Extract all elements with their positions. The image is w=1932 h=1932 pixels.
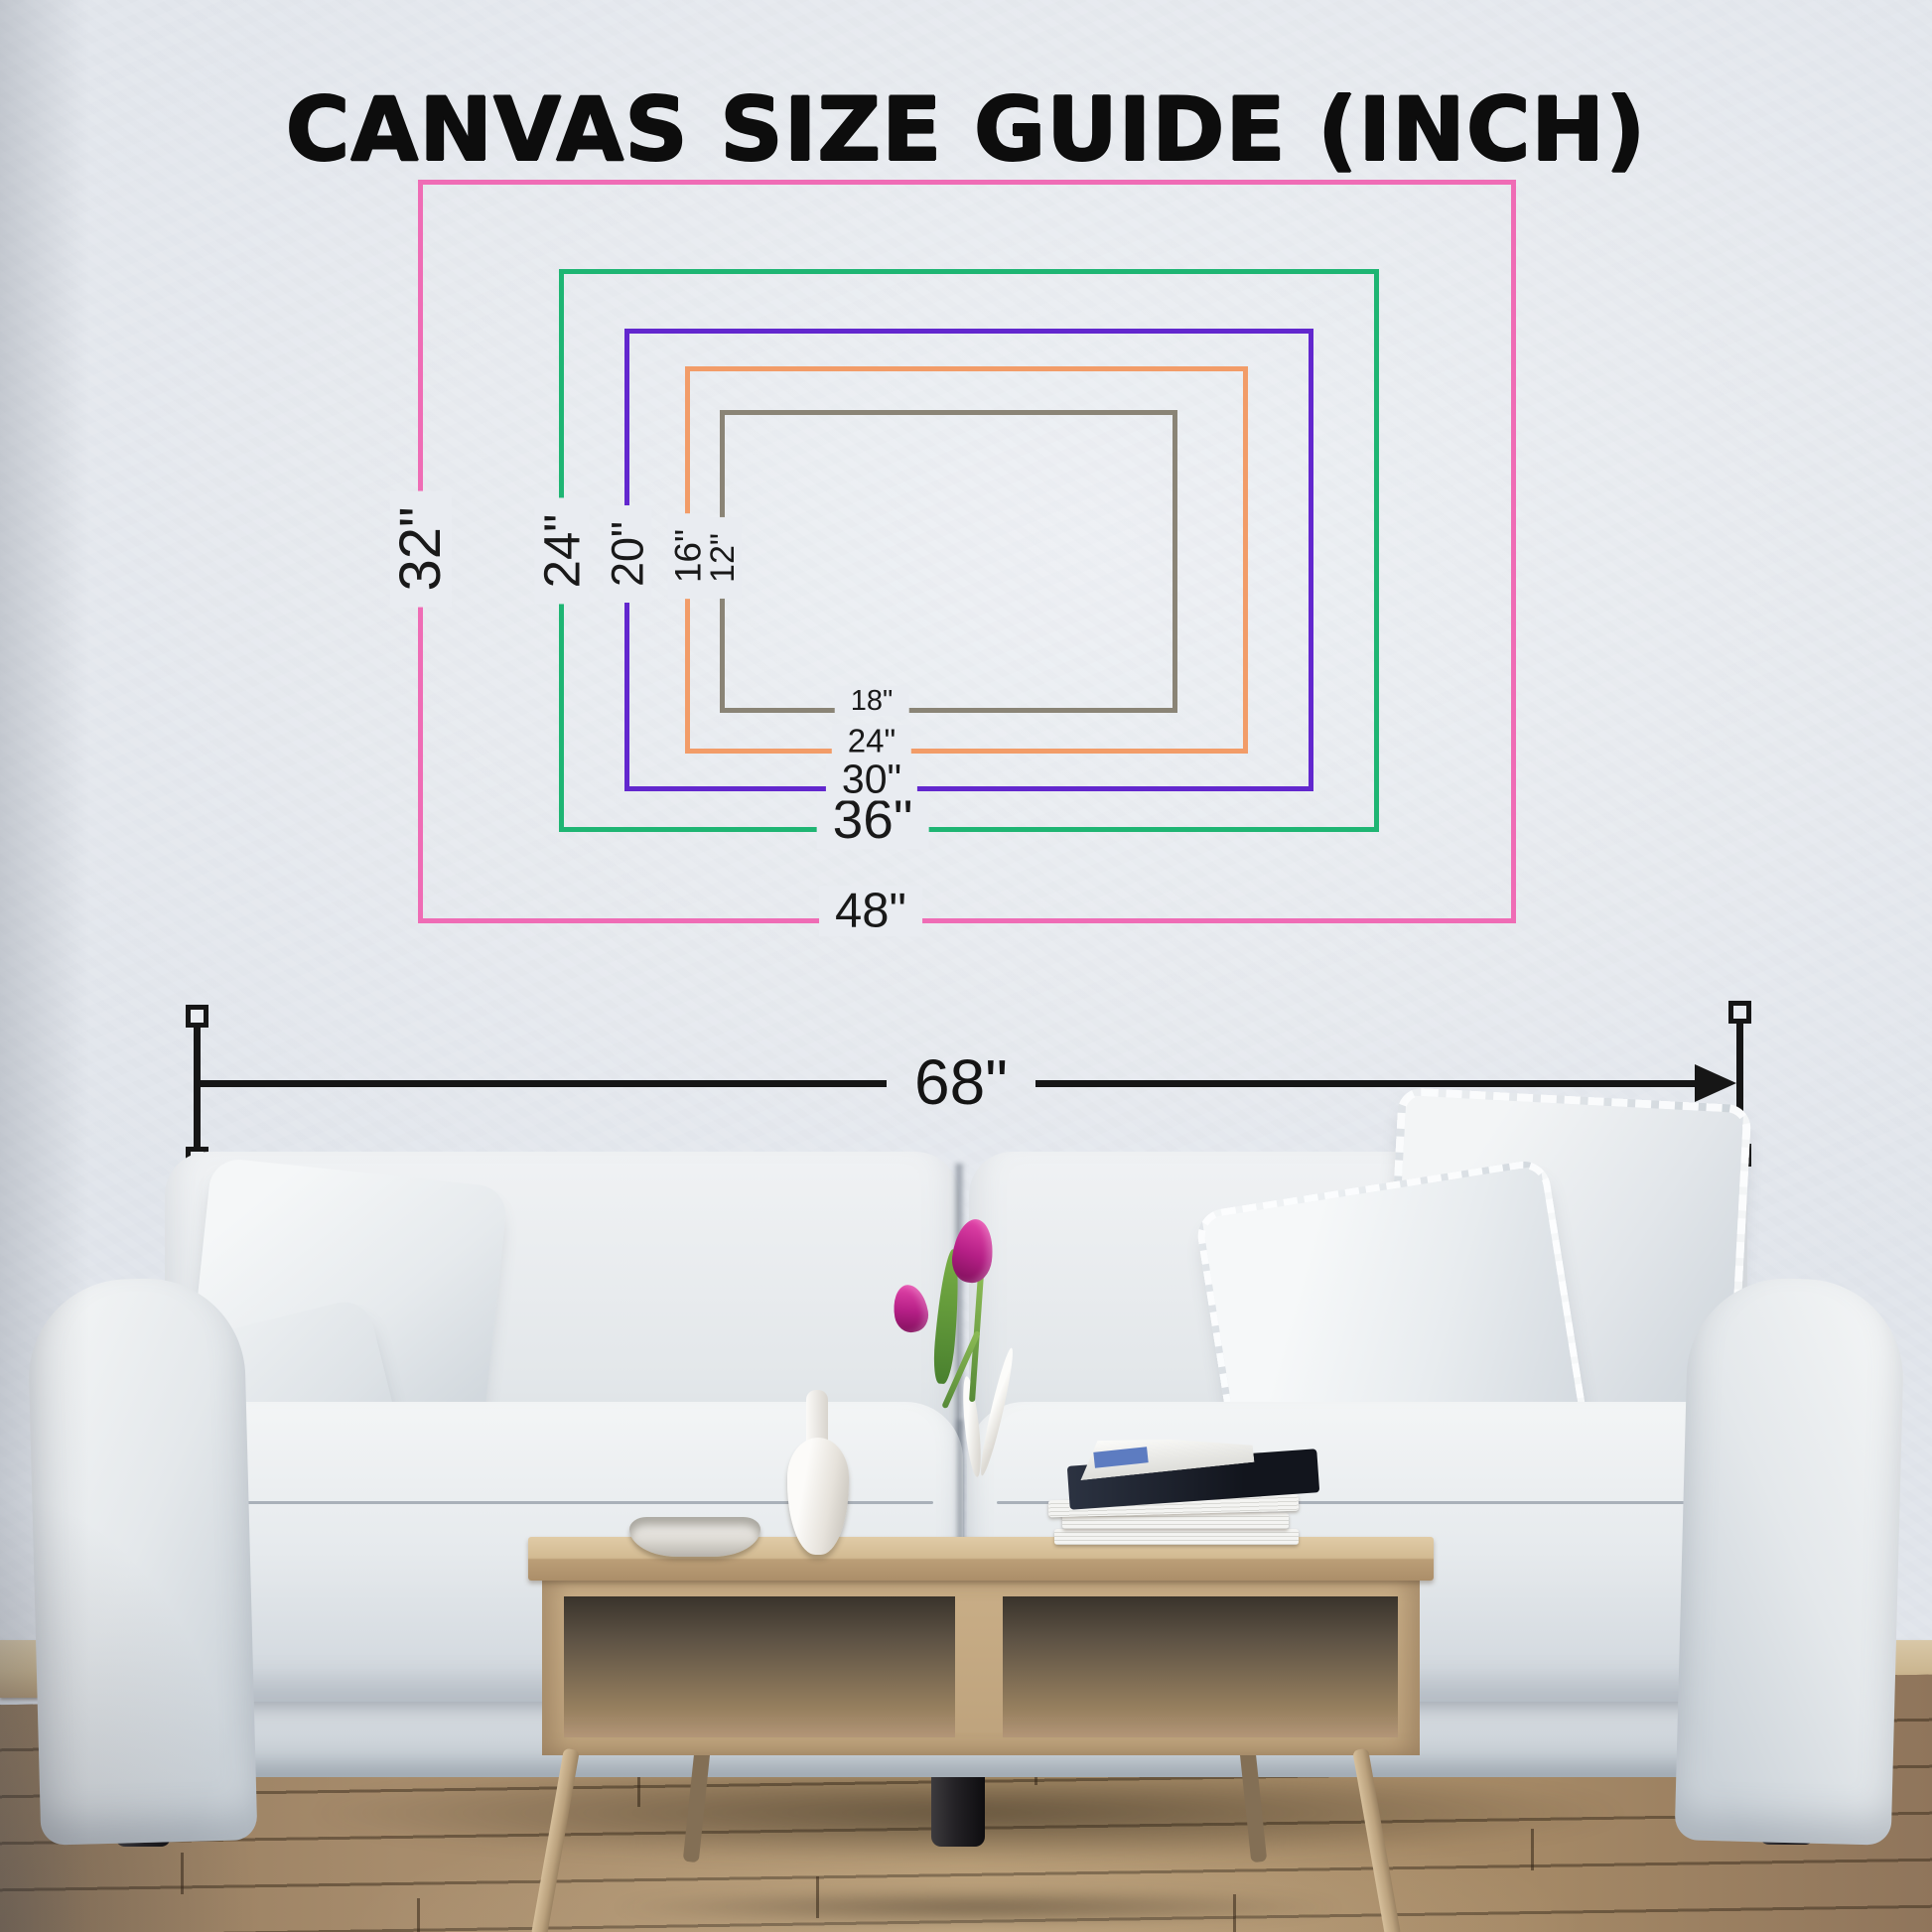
- bottom-left-shadow: [0, 1489, 258, 1932]
- height-label-32in: 32": [390, 490, 452, 607]
- dimension-handle-icon: [186, 1005, 208, 1028]
- table-shelf-box: [542, 1579, 1420, 1755]
- dimension-arrowhead-icon: [1695, 1064, 1736, 1102]
- height-label-16in: 16": [668, 513, 709, 599]
- bowl: [629, 1517, 760, 1557]
- sofa-armrest-right: [1675, 1276, 1906, 1846]
- height-label-24in: 24": [535, 498, 590, 605]
- floor-plank-seam: [417, 1898, 420, 1932]
- dimension-handle-icon: [1728, 1001, 1751, 1024]
- table-shelf-opening-left: [564, 1596, 955, 1737]
- canvas-rect-18x12: [720, 410, 1177, 713]
- width-label-48in: 48": [819, 886, 922, 936]
- page-title: CANVAS SIZE GUIDE (INCH): [0, 78, 1932, 181]
- table-shelf-opening-right: [1003, 1596, 1398, 1737]
- dimension-line-right: [1035, 1080, 1703, 1087]
- height-label-12in: 12": [704, 517, 742, 599]
- dimension-end-bar-left: [194, 1019, 201, 1158]
- width-label-24in: 24": [832, 725, 911, 759]
- table-shadow: [467, 1882, 1489, 1932]
- width-label-30in: 30": [826, 758, 917, 800]
- dimension-line-left: [198, 1080, 887, 1087]
- book: [1054, 1529, 1299, 1545]
- width-label-18in: 18": [835, 686, 909, 716]
- canvas-size-guide-infographic: CANVAS SIZE GUIDE (INCH) 32" 24" 20" 16"…: [0, 0, 1932, 1932]
- height-label-20in: 20": [604, 505, 652, 603]
- wall-width-label-68in: 68": [914, 1050, 1008, 1114]
